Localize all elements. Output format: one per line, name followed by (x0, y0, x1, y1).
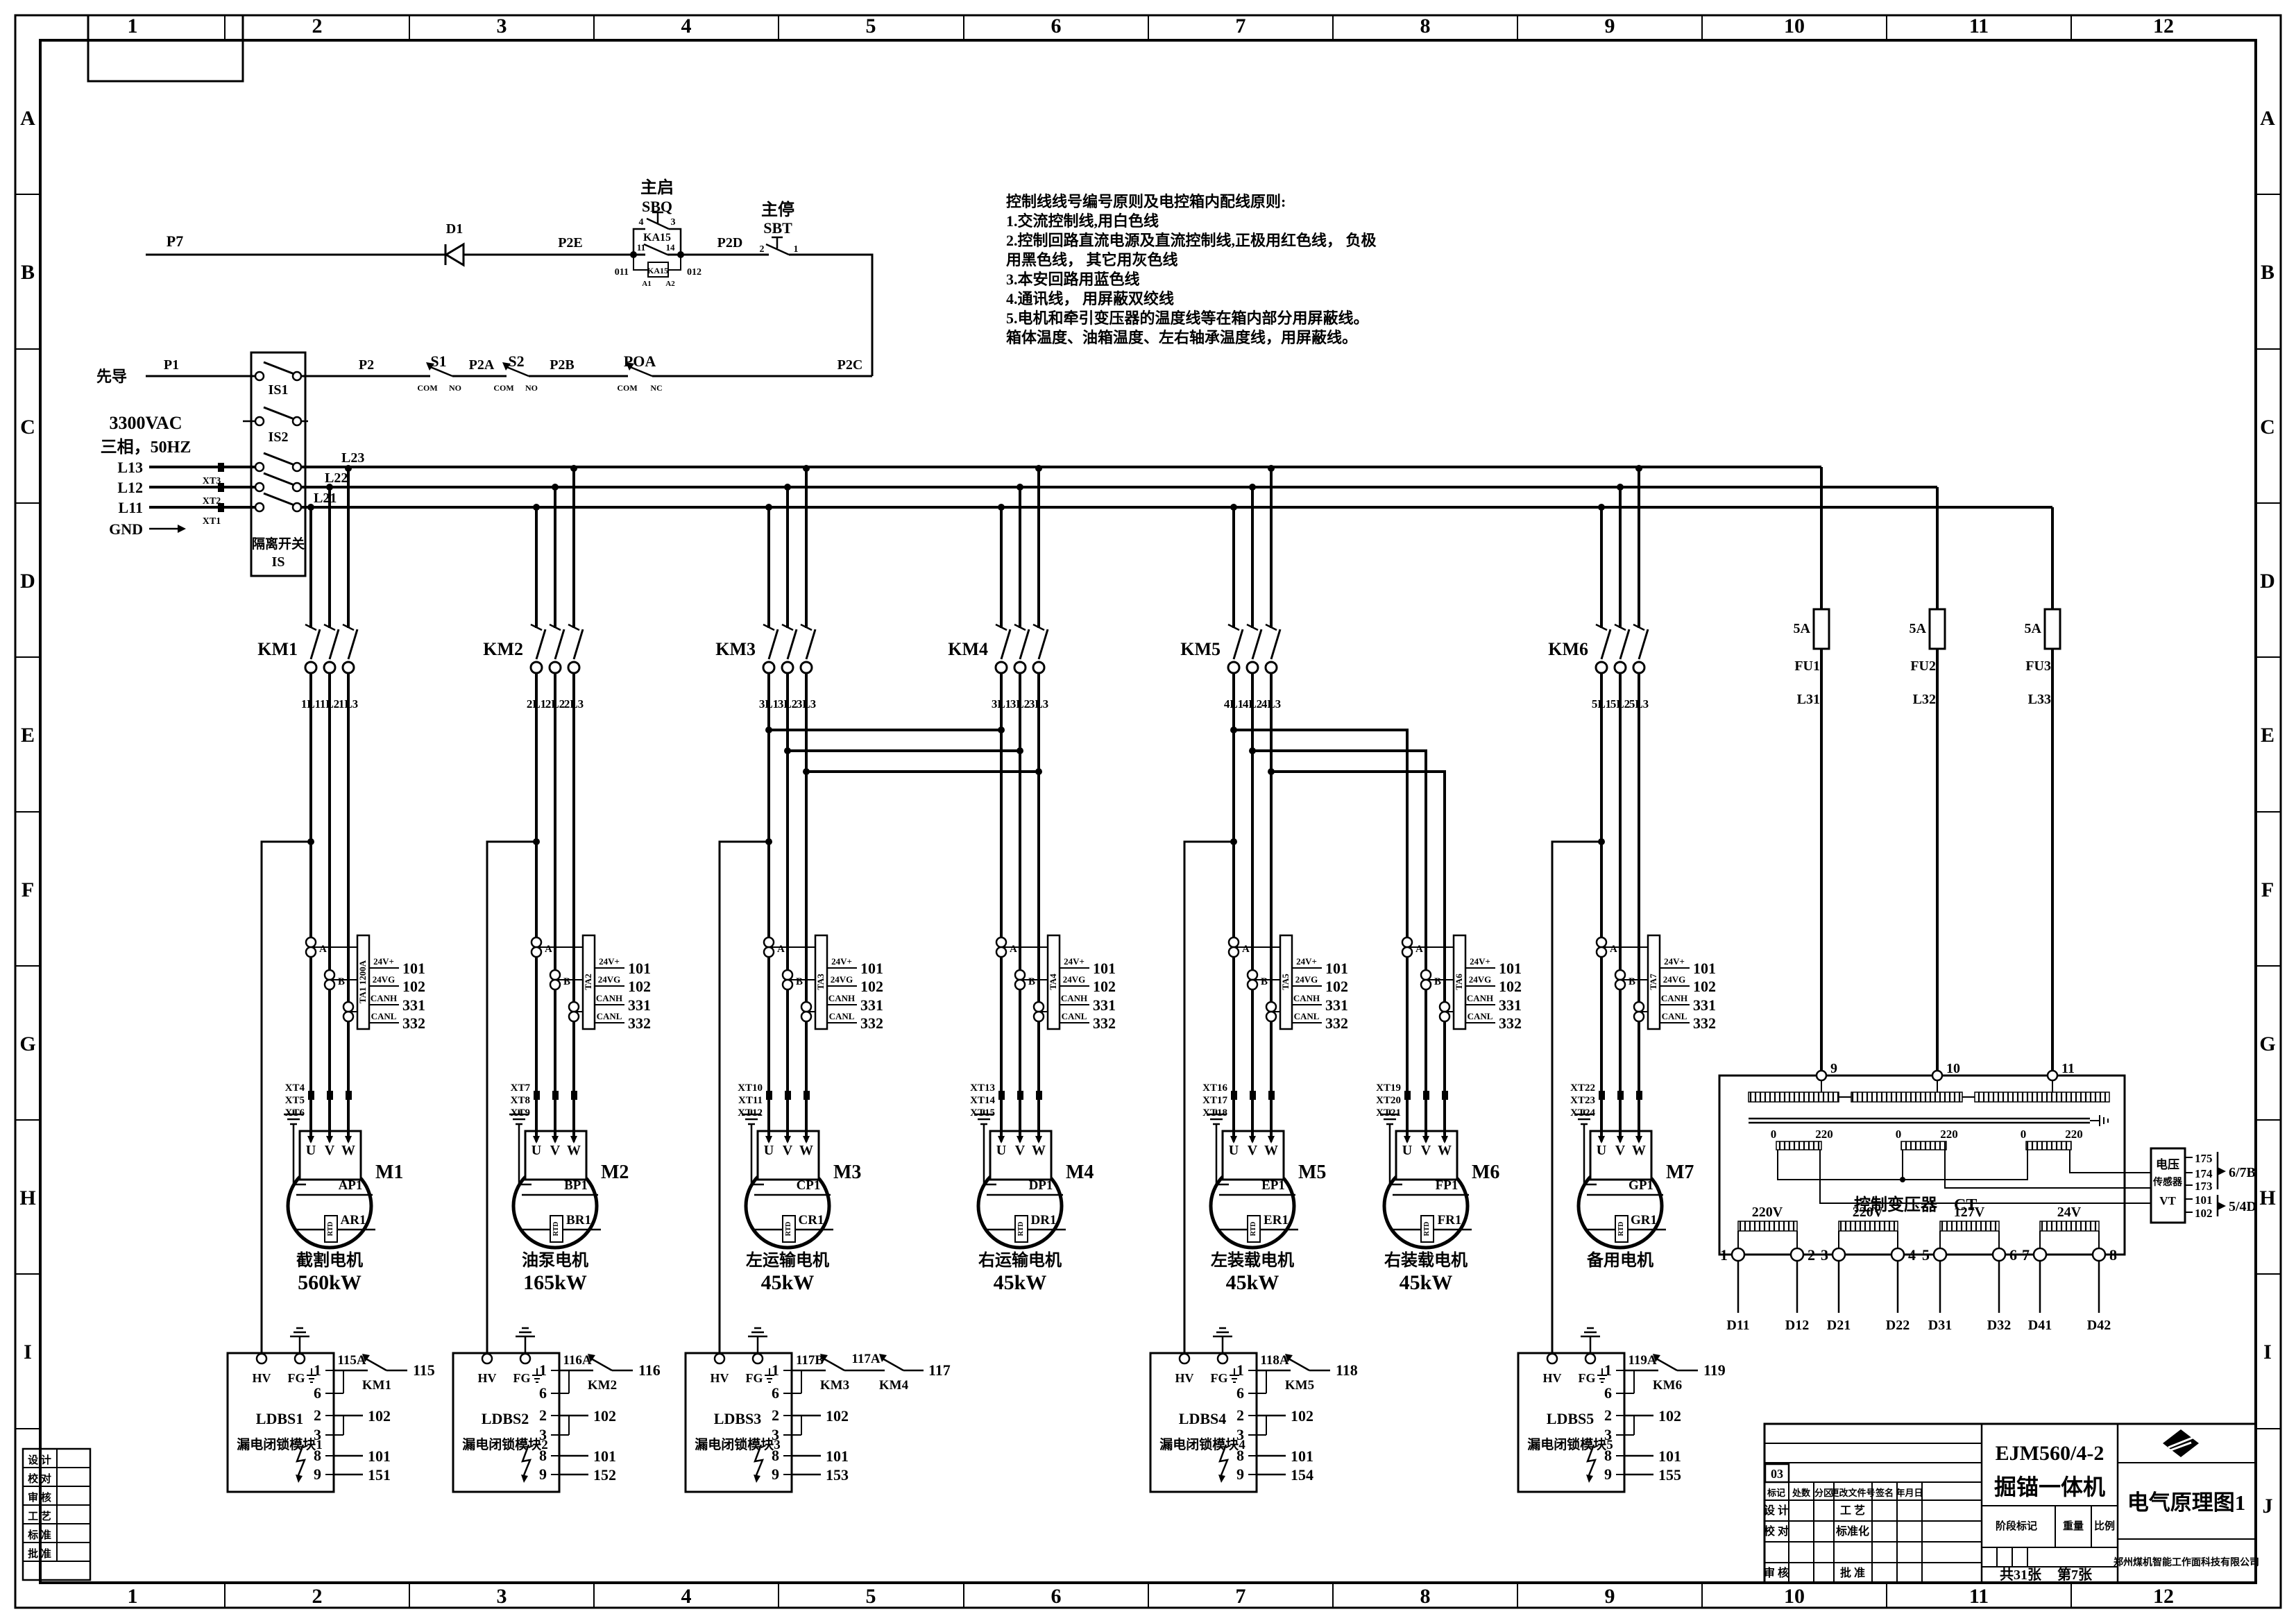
svg-text:XT2: XT2 (203, 496, 221, 507)
wire-label: 3L3 (1029, 697, 1048, 711)
grid-cols-top: 3 (497, 15, 507, 37)
contactor-label: KM5 (1180, 639, 1221, 659)
svg-text:6: 6 (314, 1384, 321, 1402)
svg-text:332: 332 (628, 1014, 651, 1032)
svg-text:9: 9 (539, 1465, 547, 1483)
grid-col-label: 11 (1969, 1585, 1989, 1608)
grid-row-label: A (2260, 107, 2275, 130)
grid-rows-left: A (20, 107, 35, 130)
svg-text:共31张: 共31张 (2000, 1567, 2042, 1583)
svg-text:COM: COM (617, 383, 637, 393)
sec-wire: D42 (2087, 1318, 2111, 1333)
current-transformer: A B C TA3 24V+ 24VG CANH CANL 101 102 33… (764, 935, 883, 1032)
ta-label: TA4 (1048, 974, 1058, 990)
sec-term: 2 (1808, 1246, 1815, 1264)
svg-text:2: 2 (772, 1407, 779, 1424)
wire-label: 3L1 (992, 697, 1011, 711)
motor-branch: KM1 1L1 1L2 1L3 A B C TA1 1200A 24V+ 24V… (257, 465, 425, 1294)
rtd-label: RTD (1617, 1222, 1625, 1237)
motor-name: 右装载电机 (1384, 1251, 1468, 1270)
ct-secondary: 127V 5 6 D31 D32 (1922, 1205, 2017, 1333)
xt-label: XT18 (1202, 1107, 1227, 1119)
wire-label: 5L2 (1610, 697, 1630, 711)
grid-col-label: 5 (866, 1585, 876, 1608)
module-wire1: 117B (796, 1353, 824, 1368)
svg-text:CANL: CANL (597, 1011, 622, 1021)
motor-ref: M1 (375, 1162, 403, 1183)
svg-text:CANL: CANL (1294, 1011, 1320, 1021)
svg-text:102: 102 (1291, 1407, 1313, 1425)
module-wire9: 153 (826, 1466, 849, 1484)
motor-branch: KM3 3L1 3L2 3L3 A B C TA3 24V+ 24VG CANH… (715, 465, 883, 1294)
signature-label: 校 对 (28, 1472, 51, 1485)
motor-power: 560kW (298, 1271, 362, 1294)
svg-text:331: 331 (402, 996, 425, 1014)
xt-label: XT21 (1376, 1107, 1401, 1119)
svg-text:101: 101 (1325, 960, 1348, 977)
fuse-feeders (1821, 467, 2052, 1071)
xt-label: XT19 (1376, 1082, 1401, 1094)
svg-text:FG: FG (513, 1371, 531, 1385)
switch-poa: POA COM NC (617, 352, 662, 393)
xt-label: XT10 (738, 1082, 763, 1094)
product-name: 掘锚一体机 (1994, 1475, 2105, 1499)
module-km: KM5 (1285, 1378, 1314, 1393)
svg-text:0: 0 (1896, 1128, 1902, 1141)
contactor-label: KM3 (715, 639, 756, 659)
motor-ref: M7 (1666, 1162, 1694, 1183)
svg-text:隔离开关: 隔离开关 (252, 536, 305, 552)
signature-row: 校 对 (28, 1472, 51, 1485)
svg-text:U: U (306, 1143, 316, 1158)
signature-label: 工 艺 (28, 1511, 51, 1522)
svg-text:CANH: CANH (596, 993, 622, 1003)
svg-text:102: 102 (368, 1407, 391, 1425)
svg-text:IS: IS (272, 554, 285, 570)
svg-text:校 对: 校 对 (1764, 1524, 1789, 1538)
motor-r-label: CR1 (799, 1213, 824, 1227)
svg-text:331: 331 (1693, 996, 1716, 1014)
svg-text:P2B: P2B (550, 357, 575, 373)
grid-col-label: 6 (1051, 15, 1062, 37)
schematic-sheet: 1 2 3 4 5 6 7 8 9 10 11 12 1 2 3 4 5 6 7… (0, 0, 2296, 1623)
motor-ref: M5 (1298, 1162, 1326, 1183)
coil-b: B (1261, 976, 1268, 987)
lead-label: 先导 (96, 368, 127, 385)
grid-col-label: 6 (1051, 1585, 1062, 1608)
ta-label: TA6 (1454, 974, 1464, 990)
svg-text:V: V (550, 1143, 561, 1158)
wire-label: 2L1 (527, 697, 546, 711)
grid-col-label: 1 (128, 15, 138, 37)
svg-text:101: 101 (1658, 1447, 1681, 1465)
svg-text:9: 9 (1604, 1465, 1612, 1483)
svg-text:P2C: P2C (837, 357, 863, 373)
svg-text:POA: POA (624, 352, 656, 370)
svg-text:101: 101 (860, 960, 883, 977)
grid-cols-bottom: 10 (1784, 1585, 1805, 1608)
grid-col-label: 7 (1236, 1585, 1246, 1608)
grid-col-label: 4 (681, 15, 692, 37)
grid-rows-right: D (2260, 570, 2275, 593)
module-ref: LDBS2 (482, 1410, 529, 1427)
note-line: 控制线线号编号原则及电控箱内配线原则: (1006, 193, 1286, 210)
sec-term: 3 (1821, 1246, 1828, 1264)
wire-label: 4L1 (1224, 697, 1243, 711)
grid-cols-bottom: 6 (1051, 1585, 1062, 1608)
xt-label: XT4 (285, 1082, 305, 1094)
fuse: 5A FU3 L33 (2025, 609, 2060, 707)
svg-text:6: 6 (1236, 1384, 1244, 1402)
svg-text:V: V (1015, 1143, 1026, 1158)
motor-p-label: GP1 (1629, 1178, 1653, 1193)
svg-text:CANL: CANL (1662, 1011, 1687, 1021)
grid-cols-bottom: 7 (1236, 1585, 1246, 1608)
motor-branch: A B C TA6 24V+ 24VG CANH CANL 101 102 33… (1376, 935, 1522, 1294)
svg-text:331: 331 (860, 996, 883, 1014)
svg-text:331: 331 (1499, 996, 1522, 1014)
sec-term: 1 (1720, 1246, 1728, 1264)
xt-label: XT9 (511, 1107, 530, 1119)
signature-row: 标 准 (27, 1529, 51, 1541)
svg-text:W: W (1632, 1143, 1646, 1158)
svg-text:4: 4 (639, 217, 644, 228)
current-transformer: A B C TA7 24V+ 24VG CANH CANL 101 102 33… (1597, 935, 1716, 1032)
svg-text:比例: 比例 (2094, 1520, 2115, 1532)
grid-cols-top: 2 (312, 15, 323, 37)
module-wire9: 155 (1658, 1466, 1681, 1484)
single-tail: 116 (638, 1361, 661, 1379)
svg-text:3300VAC: 3300VAC (110, 413, 182, 433)
svg-text:FG: FG (1211, 1371, 1228, 1385)
wire-label: 3L3 (797, 697, 816, 711)
grid-col-label: 1 (128, 1585, 138, 1608)
svg-text:24V+: 24V+ (1296, 956, 1317, 967)
grid-col-label: 3 (497, 1585, 507, 1608)
module-name: 漏电闭锁模块5 (1527, 1436, 1613, 1452)
svg-text:L22: L22 (325, 470, 348, 486)
current-transformer: A B C TA5 24V+ 24VG CANH CANL 101 102 33… (1229, 935, 1348, 1032)
grid-rows-left: F (22, 878, 34, 901)
contactor-label: KM1 (257, 639, 298, 659)
vt-terminal: 174 (2185, 1167, 2213, 1180)
corner-block (88, 15, 243, 81)
svg-text:CANL: CANL (371, 1011, 397, 1021)
grid-row-label: G (19, 1033, 35, 1055)
grid-col-label: 8 (1420, 15, 1431, 37)
grid-rows-left: H (19, 1187, 35, 1209)
svg-text:L12: L12 (117, 479, 143, 496)
company-name: 郑州煤机智能工作面科技有限公司 (2114, 1556, 2259, 1568)
svg-text:设 计: 设 计 (1764, 1504, 1789, 1517)
svg-text:24VG: 24VG (373, 974, 396, 985)
grid-col-label: 7 (1236, 15, 1246, 37)
grid-row-label: F (22, 878, 34, 901)
wire-p2e: P2E (558, 235, 583, 250)
grid-cols-bottom: 12 (2153, 1585, 2174, 1608)
motor-r-label: DR1 (1031, 1213, 1057, 1227)
ta-label: TA5 (1280, 974, 1291, 990)
svg-text:HV: HV (253, 1371, 271, 1385)
module-ref: LDBS3 (714, 1410, 761, 1427)
fuse-rating: 5A (1910, 621, 1927, 636)
note-line: 箱体温度、油箱温度、左右轴承温度线，用屏蔽线。 (1006, 329, 1357, 346)
vt-term-label: 101 (2195, 1193, 2213, 1207)
svg-text:处数: 处数 (1792, 1488, 1811, 1498)
grid-row-label: B (2261, 261, 2274, 284)
grid-col-label: 10 (1784, 1585, 1805, 1608)
grid-rows-right: A (2260, 107, 2275, 130)
sec-voltage: 220V (1752, 1205, 1783, 1220)
grid-rows-right: F (2261, 878, 2274, 901)
svg-text:工 艺: 工 艺 (1840, 1504, 1865, 1517)
grid-cols-top: 5 (866, 15, 876, 37)
svg-text:2: 2 (1236, 1407, 1244, 1424)
svg-text:24VG: 24VG (1663, 974, 1686, 985)
svg-text:GND: GND (109, 520, 143, 538)
motor-r-label: ER1 (1264, 1213, 1289, 1227)
svg-text:1: 1 (1604, 1361, 1612, 1379)
grid-rows-left: D (20, 570, 35, 593)
svg-text:HV: HV (478, 1371, 497, 1385)
svg-text:116: 116 (638, 1361, 661, 1379)
grid-rows-left: G (19, 1033, 35, 1055)
grid-rows-right: G (2259, 1033, 2275, 1055)
gnd-terminal: GND (109, 520, 186, 538)
svg-text:011: 011 (615, 267, 629, 278)
motor-ref: M3 (833, 1162, 861, 1183)
xt-label: XT20 (1376, 1095, 1401, 1106)
svg-text:审 核: 审 核 (1764, 1566, 1789, 1579)
svg-text:117: 117 (928, 1361, 951, 1379)
xt-label: XT6 (285, 1107, 305, 1119)
fuse: 5A FU1 L31 (1794, 609, 1829, 707)
motor-p-label: FP1 (1436, 1178, 1459, 1193)
sec-wire: D22 (1886, 1318, 1910, 1333)
isolator-pole-is2: IS2 (243, 407, 308, 445)
xt-label: XT24 (1570, 1107, 1595, 1119)
svg-text:L11: L11 (119, 499, 143, 516)
motor-name: 右运输电机 (978, 1250, 1062, 1270)
wiring-notes: 箱体温度、油箱温度、左右轴承温度线，用屏蔽线。 (1006, 329, 1357, 346)
svg-text:A1: A1 (642, 280, 651, 288)
motor-ref: M2 (601, 1162, 629, 1183)
note-line: 3.本安回路用蓝色线 (1006, 271, 1140, 288)
svg-text:P2: P2 (359, 357, 374, 373)
xt-label: XT11 (738, 1095, 763, 1106)
svg-text:V: V (783, 1143, 793, 1158)
svg-text:102: 102 (1658, 1407, 1681, 1425)
fuse-wire: L31 (1797, 692, 1820, 707)
grid-rows-right: E (2261, 724, 2274, 747)
motor-branch: KM6 5L1 5L2 5L3 A B C TA7 24V+ 24VG CANH… (1548, 465, 1716, 1270)
grid-row-label: H (2259, 1187, 2275, 1209)
sec-wire: D12 (1785, 1318, 1809, 1333)
switch-s1: S1 COM NO (417, 352, 461, 393)
svg-text:101: 101 (628, 960, 651, 977)
xt-label: XT8 (511, 1095, 530, 1106)
svg-text:24VG: 24VG (831, 974, 853, 985)
svg-text:332: 332 (1325, 1014, 1348, 1032)
module-km: KM3 (820, 1378, 849, 1393)
grid-cols-bottom: 4 (681, 1585, 692, 1608)
xt-label: XT17 (1202, 1095, 1227, 1106)
grid-row-label: D (20, 570, 35, 593)
module-wire1: 118A (1260, 1353, 1289, 1368)
svg-text:U: U (996, 1143, 1006, 1158)
rtd-label: RTD (1423, 1222, 1431, 1237)
sec-voltage: 220V (1853, 1205, 1884, 1220)
svg-text:9: 9 (772, 1465, 779, 1483)
rtd-label: RTD (327, 1222, 334, 1237)
svg-text:W: W (341, 1143, 355, 1158)
svg-text:CANH: CANH (1467, 993, 1493, 1003)
grid-cols-bottom: 3 (497, 1585, 507, 1608)
isolator-phase-poles (255, 453, 301, 511)
ct-secondary: 220V 3 4 D21 D22 (1821, 1205, 1916, 1333)
sec-wire: D32 (1987, 1318, 2011, 1333)
svg-text:332: 332 (860, 1014, 883, 1032)
motor-name: 左装载电机 (1211, 1251, 1294, 1270)
svg-text:U: U (1402, 1143, 1412, 1158)
svg-text:年月日: 年月日 (1896, 1488, 1923, 1498)
svg-text:CANL: CANL (1468, 1011, 1493, 1021)
svg-text:118: 118 (1336, 1361, 1358, 1379)
wire-label: 3L2 (1010, 697, 1030, 711)
svg-text:117A: 117A (851, 1352, 880, 1366)
ta-label: TA2 (583, 974, 593, 990)
coil-a: A (1610, 944, 1617, 955)
coil-a: A (777, 944, 785, 955)
vt-term-label: 175 (2195, 1152, 2213, 1165)
wire-label: 5L1 (1592, 697, 1611, 711)
xt-label: XT13 (970, 1082, 995, 1094)
svg-text:W: W (1032, 1143, 1046, 1158)
grid-cols-top: 1 (128, 15, 138, 37)
grid-col-label: 5 (866, 15, 876, 37)
grid-col-label: 2 (312, 15, 323, 37)
svg-text:XT1: XT1 (203, 516, 221, 527)
svg-text:U: U (1597, 1143, 1606, 1158)
sec-term: 4 (1908, 1246, 1916, 1264)
svg-text:1: 1 (794, 244, 799, 255)
switch-s2: S2 COM NO (493, 352, 538, 393)
svg-text:102: 102 (1693, 978, 1716, 995)
grid-rows-right: I (2263, 1341, 2272, 1363)
svg-text:9: 9 (1830, 1061, 1837, 1076)
svg-text:KA15: KA15 (647, 266, 668, 275)
svg-text:012: 012 (687, 267, 701, 278)
xt-label: XT7 (511, 1082, 531, 1094)
svg-text:102: 102 (402, 978, 425, 995)
wire-label: 3L2 (778, 697, 797, 711)
motor-ref: M4 (1066, 1162, 1094, 1183)
module-km: KM2 (588, 1378, 617, 1393)
coil-a: A (319, 944, 327, 955)
xt-label: XT23 (1570, 1095, 1595, 1106)
current-transformer: A B C TA1 1200A 24V+ 24VG CANH CANL 101 … (306, 935, 425, 1032)
grid-row-label: J (2263, 1495, 2273, 1518)
grid-col-label: 12 (2153, 1585, 2174, 1608)
motor-p-label: DP1 (1029, 1178, 1053, 1193)
grid-col-label: 11 (1969, 15, 1989, 37)
motor-branch: KM5 4L1 4L2 4L3 A B C TA5 24V+ 24VG CANH… (1180, 465, 1348, 1294)
svg-text:标准化: 标准化 (1835, 1524, 1869, 1538)
contactor-group: KM2 2L1 2L2 2L3 (483, 465, 584, 937)
svg-text:331: 331 (628, 996, 651, 1014)
svg-text:24V+: 24V+ (831, 956, 852, 967)
signature-label: 审 核 (28, 1491, 51, 1504)
motor-name: 左运输电机 (746, 1250, 829, 1270)
motor-name: 油泵电机 (522, 1251, 588, 1270)
module-km: KM6 (1653, 1378, 1682, 1393)
svg-text:主停: 主停 (761, 200, 794, 219)
wiring-notes: 1.交流控制线,用白色线 (1006, 212, 1159, 230)
svg-text:102: 102 (1325, 978, 1348, 995)
ka15-coil: KA15 011 A1 A2 012 (615, 255, 701, 288)
svg-text:03: 03 (1771, 1467, 1783, 1481)
svg-text:CANH: CANH (1293, 993, 1320, 1003)
svg-text:阶段标记: 阶段标记 (1996, 1520, 2037, 1532)
svg-text:CANL: CANL (1062, 1011, 1087, 1021)
svg-text:U: U (532, 1143, 541, 1158)
grid-cols-bottom: 8 (1420, 1585, 1431, 1608)
wiring-notes: 4.通讯线， 用屏蔽双绞线 (1006, 290, 1174, 307)
parallel-links (765, 726, 1445, 937)
grid-rows-right: H (2259, 1187, 2275, 1209)
svg-text:331: 331 (1325, 996, 1348, 1014)
coil-b: B (563, 976, 570, 987)
sec-wire: D11 (1726, 1318, 1749, 1333)
grid-rows-right: J (2263, 1495, 2273, 1518)
sec-term: 8 (2109, 1246, 2117, 1264)
coil-b: B (1629, 976, 1635, 987)
vt-terminal: 102 (2185, 1207, 2213, 1220)
svg-text:签名: 签名 (1875, 1488, 1894, 1498)
grid-cols-bottom: 11 (1969, 1585, 1989, 1608)
svg-text:XT3: XT3 (203, 476, 221, 486)
svg-text:24V+: 24V+ (1470, 956, 1490, 967)
wiring-notes: 2.控制回路直流电源及直流控制线,正极用红色线， 负极 (1006, 232, 1377, 249)
fuse: 5A FU2 L32 (1910, 609, 1945, 707)
svg-text:KA15: KA15 (643, 232, 671, 244)
fuse-wire: L33 (2028, 692, 2051, 707)
svg-text:24VG: 24VG (598, 974, 621, 985)
coil-a: A (1010, 944, 1017, 955)
motor-p-label: AP1 (339, 1178, 363, 1193)
grid-col-label: 2 (312, 1585, 323, 1608)
svg-text:5/4D: 5/4D (2229, 1199, 2256, 1214)
signature-label: 批 准 (28, 1547, 51, 1560)
svg-text:A2: A2 (665, 280, 675, 288)
grid-row-label: D (2260, 570, 2275, 593)
fuse-rating: 5A (2025, 621, 2042, 636)
svg-text:1: 1 (314, 1361, 321, 1379)
xt-label: XT5 (285, 1095, 305, 1106)
svg-text:三相，50HZ: 三相，50HZ (101, 438, 192, 457)
wire-label: 4L2 (1243, 697, 1262, 711)
svg-text:9: 9 (1236, 1465, 1244, 1483)
svg-text:重量: 重量 (2063, 1520, 2084, 1532)
fuse-ref: FU3 (2025, 658, 2051, 674)
vt-links: 6/7B 5/4D (2218, 1152, 2256, 1216)
svg-text:101: 101 (368, 1447, 391, 1465)
motor-ref: M6 (1472, 1162, 1499, 1183)
single-tail: 115 (413, 1361, 435, 1379)
svg-text:P1: P1 (164, 357, 179, 373)
module-name: 漏电闭锁模块1 (237, 1436, 323, 1452)
note-line: 用黑色线， 其它用灰色线 (1006, 251, 1178, 269)
